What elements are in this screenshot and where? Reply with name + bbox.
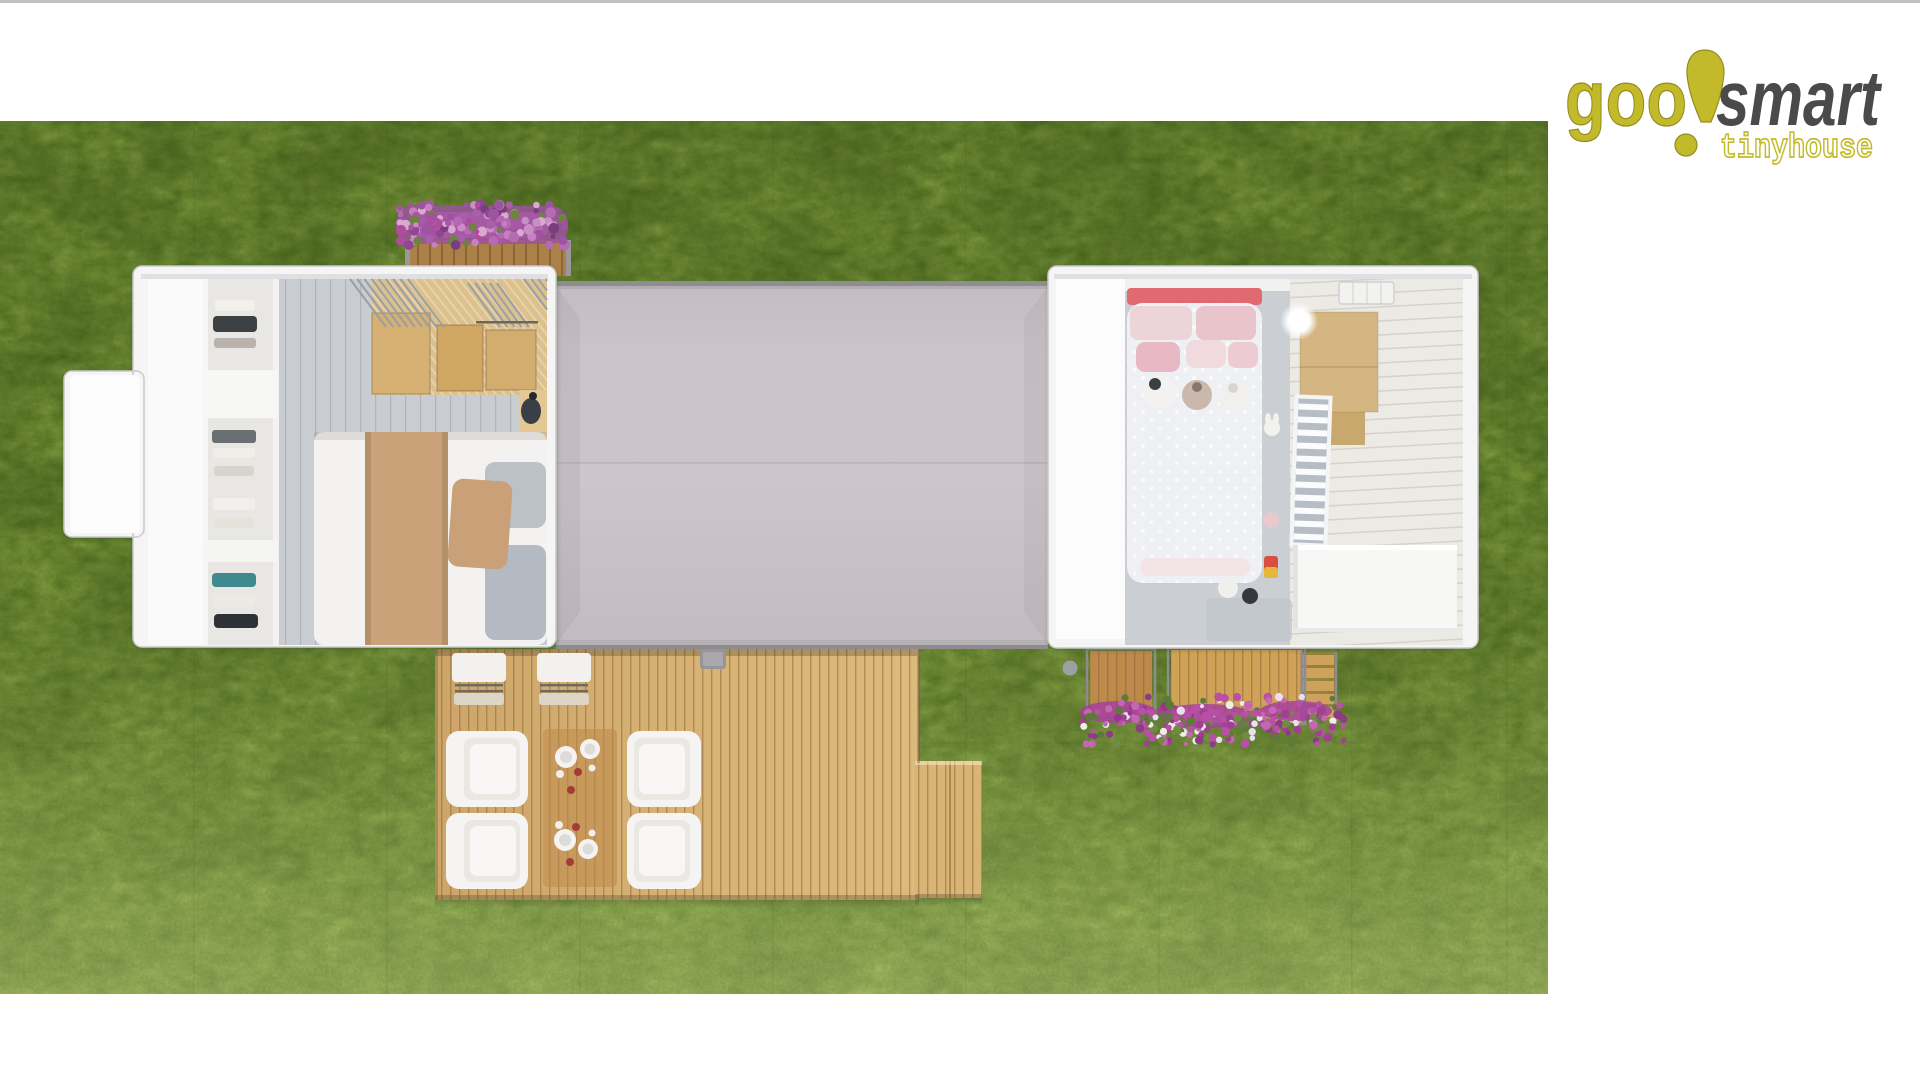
svg-text:smart: smart	[1716, 54, 1882, 142]
svg-text:goo: goo	[1565, 54, 1687, 142]
svg-text:tinyhouse: tinyhouse	[1720, 130, 1873, 168]
